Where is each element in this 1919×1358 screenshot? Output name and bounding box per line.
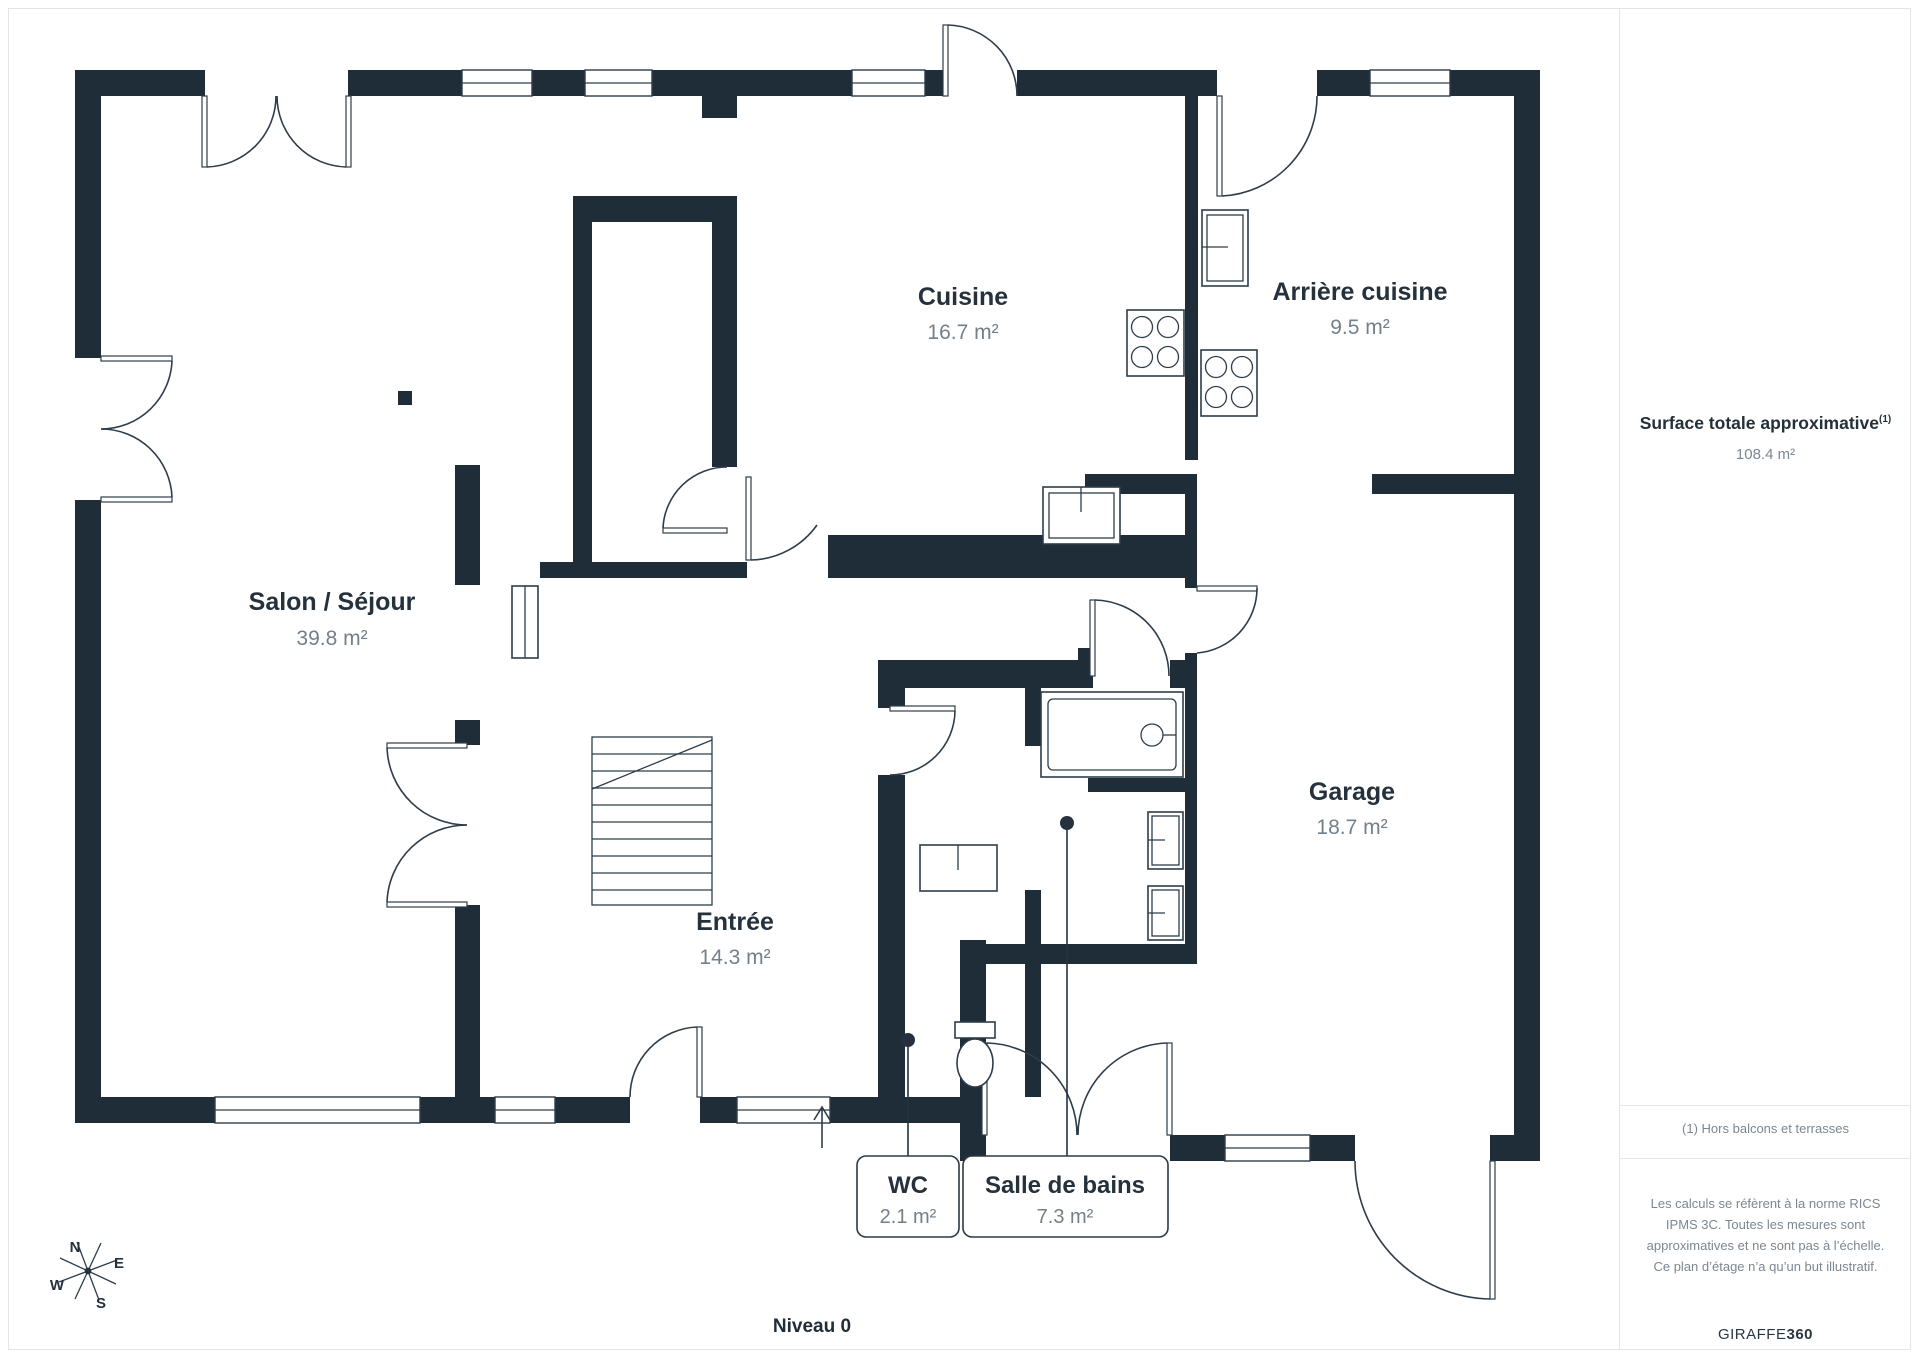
room-area: 16.7 m²	[927, 321, 998, 344]
door-garage-exterior	[1355, 1161, 1495, 1299]
door-entrance	[630, 1027, 702, 1097]
toilet	[955, 1022, 995, 1087]
brand-name: GIRAFFE	[1718, 1326, 1787, 1343]
sink-wc	[920, 845, 997, 891]
room-label-box-wc: WC 2.1 m²	[857, 1156, 959, 1237]
window	[495, 1097, 555, 1123]
room-name: Salon / Séjour	[249, 588, 416, 616]
room-area: 18.7 m²	[1316, 816, 1387, 839]
compass-icon: N E W S	[50, 1239, 124, 1312]
panel-horizontal-divider-1	[1620, 1105, 1911, 1106]
door-double-salon-north	[202, 96, 351, 167]
brand-suffix: 360	[1786, 1326, 1813, 1343]
room-area: 7.3 m²	[1037, 1206, 1094, 1228]
sink-arriere-cuisine	[1202, 210, 1248, 286]
room-label-cuisine: Cuisine 16.7 m²	[918, 283, 1008, 344]
window	[852, 70, 925, 96]
door-double-salon-west	[101, 356, 172, 502]
door-double-garage	[982, 1043, 1172, 1135]
room-name: Garage	[1309, 778, 1395, 806]
level-label: Niveau 0	[773, 1316, 851, 1337]
radiator	[512, 586, 538, 658]
room-area: 39.8 m²	[296, 627, 367, 650]
panel-horizontal-divider-2	[1620, 1158, 1911, 1159]
room-name: WC	[888, 1172, 928, 1199]
window	[737, 1097, 830, 1123]
stove-left	[1127, 310, 1184, 376]
compass-west: W	[50, 1277, 65, 1294]
total-surface-value: 108.4 m²	[1620, 446, 1911, 463]
sink-bathroom-1	[1148, 812, 1183, 869]
room-label-entree: Entrée 14.3 m²	[696, 908, 774, 969]
door-kitchen-exterior	[943, 25, 1017, 96]
brand-logo: GIRAFFE360	[1620, 1326, 1911, 1343]
window	[1370, 70, 1450, 96]
window	[585, 70, 652, 96]
door-garage-corridor	[1197, 586, 1257, 653]
window	[1225, 1135, 1310, 1161]
door-double-salon-entree	[387, 743, 467, 907]
compass-east: E	[114, 1255, 124, 1272]
compass-north: N	[70, 1239, 81, 1256]
side-panel: Surface totale approximative(1) 108.4 m²…	[1620, 8, 1911, 1349]
sink-bathroom-2	[1148, 886, 1183, 940]
room-label-box-salle-de-bains: Salle de bains 7.3 m²	[963, 1156, 1168, 1237]
room-name: Entrée	[696, 908, 774, 936]
bathtub	[1041, 692, 1183, 777]
window	[215, 1097, 420, 1123]
sink-kitchen	[1043, 487, 1120, 544]
door-kitchen-hall	[746, 477, 817, 560]
compass-south: S	[96, 1295, 106, 1312]
room-area: 2.1 m²	[880, 1206, 937, 1228]
door-arriere-cuisine	[1217, 96, 1317, 196]
room-label-arriere-cuisine: Arrière cuisine 9.5 m²	[1272, 278, 1447, 339]
staircase	[592, 737, 712, 905]
room-label-garage: Garage 18.7 m²	[1309, 778, 1395, 839]
door-wc	[890, 706, 955, 775]
window	[462, 70, 532, 96]
room-name: Arrière cuisine	[1272, 278, 1447, 306]
footnote: (1) Hors balcons et terrasses	[1620, 1121, 1911, 1136]
page: Salon / Séjour 39.8 m² Cuisine 16.7 m² A…	[0, 0, 1919, 1358]
total-surface-title-sup: (1)	[1879, 414, 1891, 425]
total-surface-title: Surface totale approximative(1)	[1620, 413, 1911, 434]
room-label-salon: Salon / Séjour 39.8 m²	[249, 588, 416, 650]
stove-right	[1201, 350, 1257, 416]
room-area: 14.3 m²	[699, 946, 770, 969]
door-bathroom	[1090, 600, 1169, 676]
room-area: 9.5 m²	[1330, 316, 1390, 339]
total-surface-block: Surface totale approximative(1) 108.4 m²	[1620, 413, 1911, 463]
legal-disclaimer: Les calculs se réfèrent à la norme RICS …	[1640, 1193, 1891, 1277]
room-name: Cuisine	[918, 283, 1008, 311]
door-stairhall	[663, 467, 727, 533]
floor-plan: Salon / Séjour 39.8 m² Cuisine 16.7 m² A…	[0, 0, 1620, 1358]
total-surface-title-text: Surface totale approximative	[1640, 413, 1879, 433]
room-name: Salle de bains	[985, 1172, 1145, 1199]
